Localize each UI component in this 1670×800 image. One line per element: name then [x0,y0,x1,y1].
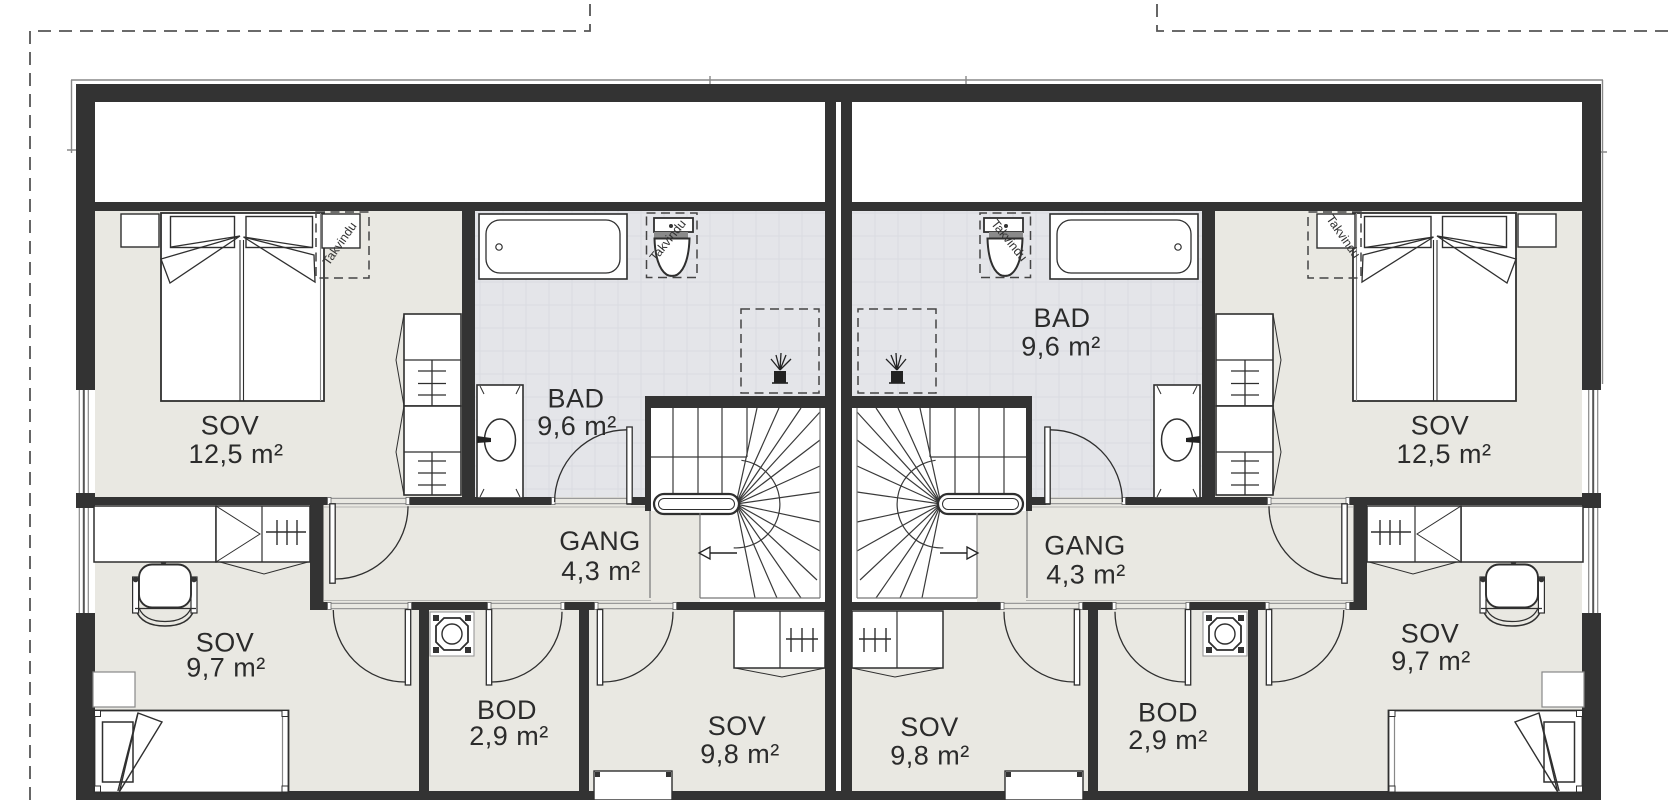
svg-text:SOV: SOV [201,411,260,441]
svg-text:4,3 m²: 4,3 m² [561,556,641,586]
svg-text:2,9 m²: 2,9 m² [1128,725,1208,755]
svg-text:9,8 m²: 9,8 m² [700,739,780,769]
svg-text:9,7 m²: 9,7 m² [1391,646,1471,676]
svg-text:9,8 m²: 9,8 m² [890,741,970,771]
svg-text:9,7 m²: 9,7 m² [186,653,266,683]
svg-text:12,5 m²: 12,5 m² [1396,439,1491,469]
svg-text:2,9 m²: 2,9 m² [469,721,549,751]
svg-text:GANG: GANG [559,526,641,556]
svg-text:SOV: SOV [900,712,959,742]
svg-text:GANG: GANG [1044,531,1126,561]
svg-text:4,3 m²: 4,3 m² [1046,560,1126,590]
svg-text:SOV: SOV [1411,411,1470,441]
svg-text:SOV: SOV [708,711,767,741]
svg-text:12,5 m²: 12,5 m² [188,439,283,469]
svg-text:9,6 m²: 9,6 m² [1021,332,1101,362]
svg-text:SOV: SOV [1401,619,1460,649]
svg-text:BOD: BOD [1138,698,1198,728]
svg-text:BAD: BAD [547,384,604,414]
svg-text:9,6 m²: 9,6 m² [537,411,617,441]
svg-text:BAD: BAD [1033,303,1090,333]
